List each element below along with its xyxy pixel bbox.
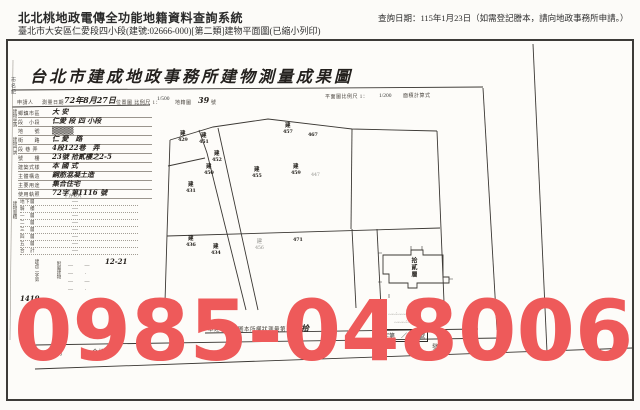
area-row: 地下層— bbox=[20, 199, 138, 206]
field-row: 號 樓23號 拾貳樓之2-5 bbox=[18, 154, 152, 163]
phone-number-overlay: 0985-048006 bbox=[14, 289, 633, 373]
area-calc-label: 面積計算式 bbox=[403, 92, 431, 99]
area-row: 一 層— bbox=[20, 213, 138, 220]
map-parcel-label: 建455 bbox=[252, 168, 262, 179]
applicant-label: 申請人 bbox=[17, 99, 34, 106]
plan-scale-label: 平面圖比例尺 1： bbox=[325, 93, 368, 100]
survey-date-label: 測量日期 bbox=[42, 99, 64, 106]
map-parcel-label: 建434 bbox=[211, 245, 221, 256]
group-area-label: 建物面積 bbox=[12, 201, 18, 253]
area-row: 合 計— bbox=[20, 248, 138, 255]
survey-date-value: 72年8月27日 bbox=[64, 95, 116, 106]
form-title: 台北市建成地政事務所建物測量成果圖 bbox=[30, 63, 353, 87]
document-subtitle: 臺北市大安區仁愛段四小段(建號:02666-000)[第二類]建物平面圖(已縮小… bbox=[18, 24, 320, 37]
field-label: 鄉鎮市區 bbox=[18, 110, 48, 117]
attach-row: — — bbox=[68, 262, 90, 269]
field-row: 使用執照72字 第1116 號 bbox=[18, 190, 152, 199]
location-scale-value: 1/500 bbox=[157, 96, 170, 102]
map-parcel-label: 建459 bbox=[291, 165, 301, 176]
cadastre-unit: 號 bbox=[211, 99, 217, 106]
area-row: 四 層— bbox=[20, 234, 138, 241]
plan-scale-value: 1/200 bbox=[379, 93, 392, 99]
map-parcel-label: 建429 bbox=[178, 132, 188, 143]
field-row: 主體構造鋼筋混凝土造 bbox=[18, 172, 152, 181]
field-row: 地 號▒▒▒▒ bbox=[18, 127, 152, 136]
map-parcel-label: 建436 bbox=[186, 237, 196, 248]
map-parcel-label: 建452 bbox=[212, 152, 222, 163]
floorplan-floor-label: 拾貳層 bbox=[409, 257, 418, 278]
map-parcel-label: 467 bbox=[308, 133, 318, 138]
cadastre-label: 地籍圖 bbox=[175, 99, 192, 106]
location-scale-label: 位置圖 比例尺 1： bbox=[116, 99, 161, 106]
area-row: 五 層— bbox=[20, 241, 138, 248]
map-parcel-label: 建450 bbox=[204, 165, 214, 176]
hand-note: 12-21 bbox=[105, 257, 127, 266]
map-parcel-label: 建456 bbox=[255, 240, 264, 251]
attach-row: — · bbox=[68, 270, 87, 277]
query-date: 查詢日期：115年1月23日（如需登記謄本，請向地政事務所申請。） bbox=[378, 12, 628, 24]
map-parcel-label: 建451 bbox=[199, 134, 209, 145]
map-parcel-label: 建457 bbox=[283, 124, 293, 135]
map-parcel-label: 建431 bbox=[186, 183, 196, 194]
map-parcel-label: 447 bbox=[311, 173, 320, 178]
map-parcel-label: 471 bbox=[293, 238, 303, 243]
area-row: 二 層— bbox=[20, 220, 138, 227]
area-row: 三 層— bbox=[20, 227, 138, 234]
margin-note: 市名紀 bbox=[9, 77, 16, 95]
area-row: 騎 樓— bbox=[20, 206, 138, 213]
field-row: 段 小段仁愛 段 四 小段 bbox=[18, 118, 152, 127]
cadastre-number: 39 bbox=[198, 95, 209, 105]
page: 北北桃地政電傳全功能地籍資料查詢系統 查詢日期：115年1月23日（如需登記謄本… bbox=[0, 0, 640, 410]
